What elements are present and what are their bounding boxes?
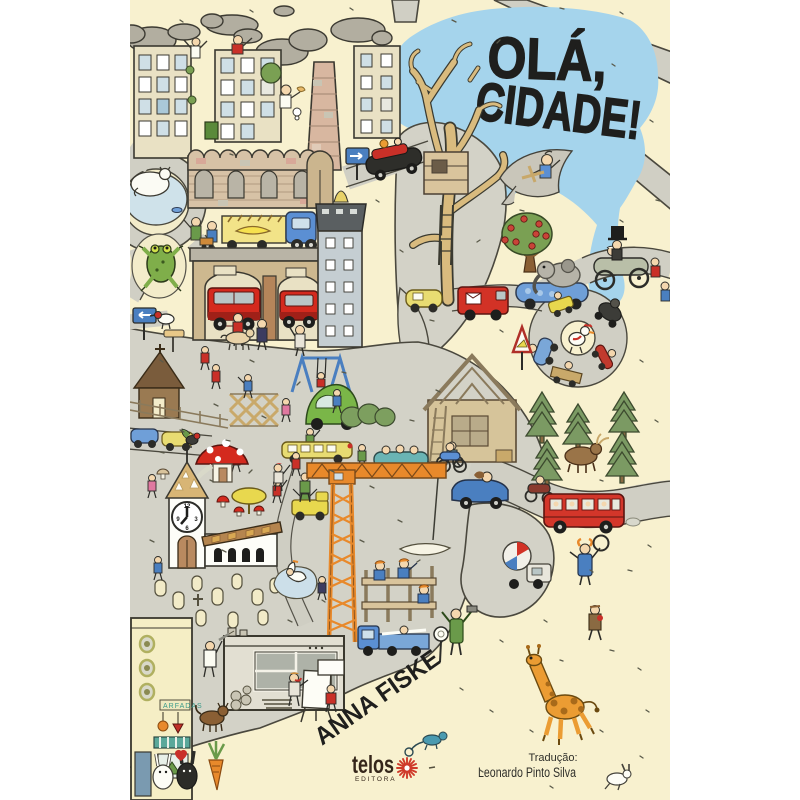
- svg-text:telos: telos: [352, 751, 394, 779]
- svg-text:Tradução:: Tradução:: [528, 752, 577, 764]
- svg-text:EDITORA: EDITORA: [355, 776, 396, 783]
- svg-text:Leonardo Pinto Silva: Leonardo Pinto Silva: [478, 765, 576, 780]
- svg-text:12: 12: [184, 504, 191, 510]
